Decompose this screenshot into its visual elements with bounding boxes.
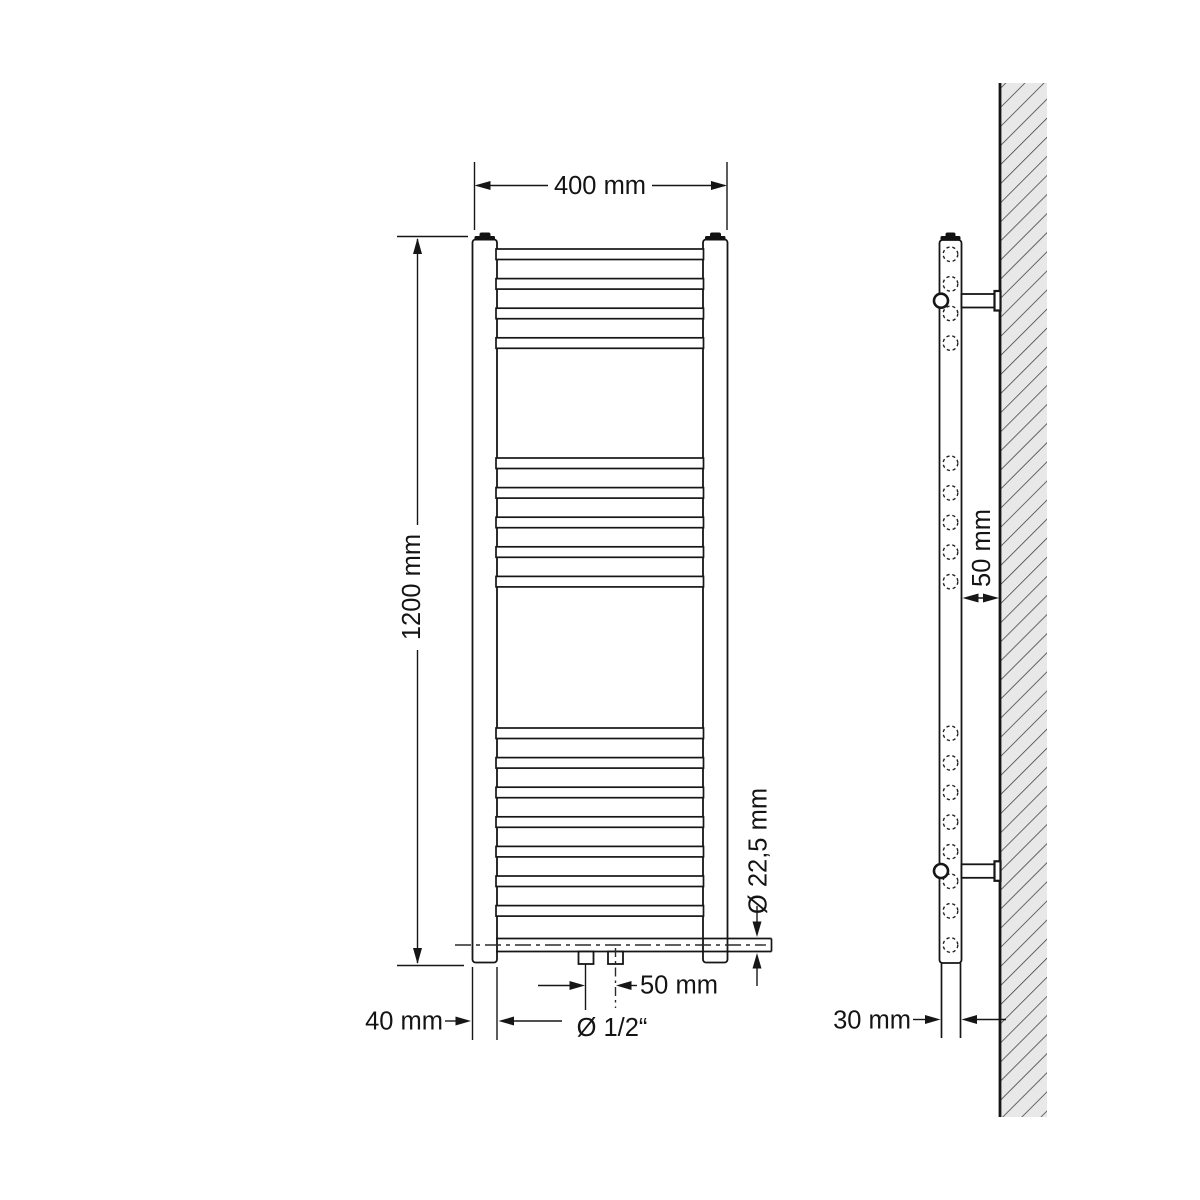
arrowhead-right (983, 594, 999, 603)
dim-tube-width-30: 30 mm (833, 1007, 1006, 1035)
arrowhead-down (413, 948, 422, 964)
radiator-rung (496, 728, 704, 739)
side-bottom-stub (942, 963, 961, 1038)
upper-wall-bracket (934, 291, 1001, 311)
dim-height-1200: 1200 mm (397, 237, 468, 966)
arrowhead-left (616, 981, 632, 990)
left-connection-stub (579, 952, 594, 965)
radiator-rung (496, 876, 704, 887)
radiator-rung (496, 758, 704, 769)
radiator-rung (496, 787, 704, 798)
arrowhead-up (753, 953, 762, 969)
radiator-rung (496, 308, 704, 319)
arrowhead-down (753, 922, 762, 938)
wall (1000, 83, 1047, 1117)
drawing-canvas: 400 mm 1200 mm 40 mm 50 mm Ø 1/2“ Ø 22 (0, 0, 1200, 1200)
connection-size-label: Ø 1/2“ (577, 1014, 648, 1042)
arrowhead-left (499, 1017, 515, 1026)
connection-spacing-label: 50 mm (640, 972, 718, 1000)
side-tube-cap (941, 233, 961, 241)
arrowhead-up (413, 238, 422, 254)
wall-distance-label: 50 mm (968, 509, 996, 587)
width-dimension-label: 400 mm (554, 172, 646, 200)
radiator-rung (496, 906, 704, 917)
right-column-tube (703, 240, 728, 963)
dim-width-400: 400 mm (475, 162, 728, 230)
dim-column-40: 40 mm (365, 967, 562, 1040)
bracket-flange (995, 861, 1001, 881)
radiator-rung (496, 817, 704, 828)
arrowhead-left (963, 594, 979, 603)
arrowhead-left (962, 1015, 978, 1024)
arrowhead-left (475, 181, 491, 190)
lower-wall-bracket (934, 861, 1001, 881)
radiator-dimension-drawing: 400 mm 1200 mm 40 mm 50 mm Ø 1/2“ Ø 22 (0, 0, 1200, 1200)
side-column-tube (940, 240, 962, 963)
dim-rung-diameter: Ø 22,5 mm (745, 788, 773, 986)
left-column-tube (473, 240, 498, 963)
bracket-clamp (934, 294, 948, 308)
arrowhead-right (456, 1017, 472, 1026)
bracket-clamp (934, 864, 948, 878)
bracket-flange (995, 291, 1001, 311)
wall-hatching (1001, 83, 1048, 1117)
radiator-rung (496, 846, 704, 857)
right-column-cap (705, 233, 726, 241)
bracket-arm (962, 864, 995, 878)
bracket-arm (962, 294, 995, 308)
column-width-label: 40 mm (365, 1008, 443, 1036)
radiator-rung (496, 249, 704, 260)
rung-diameter-label: Ø 22,5 mm (745, 788, 773, 914)
tube-width-label: 30 mm (833, 1007, 911, 1035)
radiator-rung (496, 458, 704, 469)
radiator-rung (496, 517, 704, 528)
radiator-rung (496, 488, 704, 499)
radiator-rung (496, 576, 704, 587)
arrowhead-right (925, 1015, 941, 1024)
dim-wall-distance-50: 50 mm (963, 509, 1000, 602)
radiator-rung (496, 338, 704, 349)
arrowhead-right (711, 181, 727, 190)
front-view (455, 233, 772, 1011)
dim-connection-spacing-50: 50 mm (538, 972, 718, 1000)
height-dimension-label: 1200 mm (398, 534, 426, 640)
left-column-cap (475, 233, 496, 241)
radiator-rungs (496, 249, 704, 916)
radiator-rung (496, 279, 704, 290)
arrowhead-right (570, 981, 586, 990)
radiator-rung (496, 547, 704, 558)
